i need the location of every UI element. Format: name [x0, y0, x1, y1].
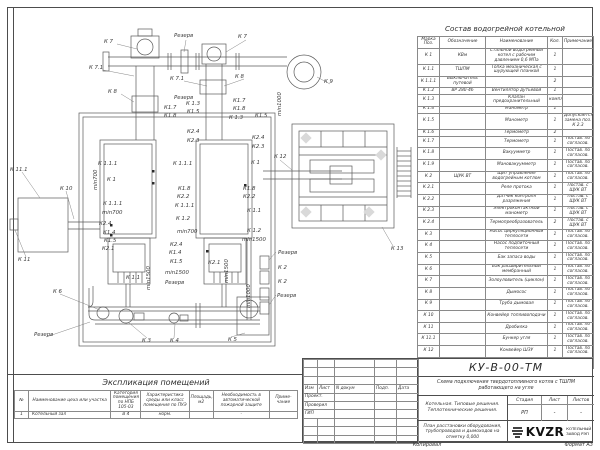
table-cell: К 11 [418, 322, 440, 334]
component-row: К 1КВмСтальной водогрейный котел с рабоч… [418, 48, 594, 64]
sig-empty-row [304, 376, 419, 384]
drawing-label: К 13 [391, 246, 404, 252]
expansion-tank-k6 [97, 307, 109, 319]
table-cell: Вентилятор дутьевой [486, 88, 548, 95]
table-cell [304, 360, 318, 368]
table-cell [375, 401, 397, 409]
component-row: К 1.2ВР 280-46Вентилятор дутьевой1 [418, 88, 594, 95]
table-cell: К 4 [418, 241, 440, 253]
title-block: ИзмЛистN докумПодп.ДатаПроект.ПроверилГИ… [302, 358, 593, 442]
component-row: К 1.5Манометр1Допускается замена поз. К … [418, 113, 594, 129]
sig-empty-row [304, 418, 419, 426]
room-explication: Экспликация помещений №Наименование цеха… [14, 378, 298, 419]
table-cell: 1 [548, 148, 563, 160]
table-cell: ГИП [304, 410, 335, 418]
drawing-label: К 7 [238, 34, 248, 40]
table-cell: К 1 [418, 48, 440, 64]
table-cell: Постав. по согласов. [563, 136, 594, 148]
drawing-label: К1.7 [233, 98, 246, 104]
table-cell: Обозначение [440, 37, 486, 49]
sheets-label: Листов [568, 396, 594, 405]
table-cell: Изм [304, 385, 318, 393]
table-cell: Стальной водогрейный котел с рабочим дав… [486, 48, 548, 64]
room-explication-table: №Наименование цеха или участкаКатегория … [14, 390, 298, 419]
table-cell: Насос циркуляционный теплосети [486, 229, 548, 241]
table-cell: 1 [548, 287, 563, 299]
table-cell [318, 418, 335, 426]
table-cell: Мановакуумметр [486, 160, 548, 172]
drawing-label: К2.4 [170, 242, 183, 248]
room-row: 1Котельный залВ 4норм.- [15, 412, 298, 419]
table-cell [440, 160, 486, 172]
table-cell: 1 [548, 322, 563, 334]
table-cell [440, 276, 486, 288]
table-cell [318, 368, 335, 376]
drawing-label: К 6 [53, 289, 63, 295]
table-cell: Площадь, м2 [189, 391, 213, 412]
table-cell: 1 [548, 334, 563, 346]
component-row: К 10Конвейер топливоподачи1Постав. по со… [418, 311, 594, 323]
table-cell: Постав. по согласов. [563, 311, 594, 323]
drawing-label: min1500 [165, 270, 189, 276]
drawing-label: К 12 [274, 154, 287, 160]
table-cell: Топка механическая с шурующей планкой [486, 65, 548, 77]
drawing-label: К1.4 [103, 230, 116, 236]
sig-role-row: Проверил [304, 401, 419, 409]
sig-header-row: ИзмЛистN докумПодп.Дата [304, 385, 419, 393]
drawing-label: К 1.3 [229, 115, 244, 121]
logo-text: KVZR [526, 425, 565, 439]
cyclone-2 [202, 44, 226, 64]
table-cell [304, 418, 318, 426]
table-cell [440, 229, 486, 241]
table-cell: К 1.3 [418, 95, 440, 107]
drawing-label: К 3 [142, 338, 152, 344]
table-cell: 1 [548, 88, 563, 95]
drawing-label: К 11.1 [10, 167, 28, 173]
table-cell: К 2 [418, 171, 440, 183]
table-cell: 1 [548, 229, 563, 241]
table-cell [304, 376, 318, 384]
table-cell: Бак запаса воды [486, 253, 548, 265]
logo-company-line2: ЗАВОД РЭП [566, 431, 589, 436]
table-cell [375, 360, 397, 368]
table-cell: 1 [548, 113, 563, 129]
table-cell: Постав. по согласов. [563, 287, 594, 299]
table-cell: К 2.1 [418, 183, 440, 195]
table-cell: Марка Поз. [418, 37, 440, 49]
table-cell: Постав. по согласов. [563, 264, 594, 276]
component-row: К 3Насос циркуляционный теплосети1Постав… [418, 229, 594, 241]
slag-bunker [263, 124, 394, 228]
sheet-value: - [542, 405, 568, 421]
table-header-row: Марка Поз.ОбозначениеНаименованиеКол.При… [418, 37, 594, 49]
drawing-label: К2.1 [208, 260, 220, 266]
table-cell: 1 [548, 206, 563, 218]
sig-empty-row [304, 368, 419, 376]
table-cell: Необходимость в автоматической пожарной … [213, 391, 269, 412]
table-cell [440, 334, 486, 346]
drawing-label: К2.3 [187, 138, 200, 144]
table-cell: К 5 [418, 253, 440, 265]
table-cell: К 12 [418, 346, 440, 358]
component-row: К 4Насос подпиточный теплосети1Постав. п… [418, 241, 594, 253]
table-cell: К 2.4 [418, 218, 440, 230]
table-cell: Подп. [375, 385, 397, 393]
drawing-label: К2.4 [252, 135, 265, 141]
table-cell [440, 206, 486, 218]
drawing-label: К 1.1.1 [173, 161, 192, 167]
kvzr-logo-icon [511, 425, 524, 439]
table-cell [440, 136, 486, 148]
table-cell: Реле протока [486, 183, 548, 195]
table-cell: Лист [318, 385, 335, 393]
table-cell: Категория помещения по НПБ 105-03 [111, 391, 141, 412]
table-cell [375, 427, 397, 435]
flange-dots [110, 170, 247, 253]
table-cell: 2 [548, 76, 563, 88]
drawing-label: Резерв [34, 332, 53, 338]
sig-role-row: ГИП [304, 410, 419, 418]
table-cell: Постав. с ЩУК ВТ [563, 183, 594, 195]
component-row: К 2.4Термопреобразователь2Постав. с ЩУК … [418, 218, 594, 230]
table-cell [563, 130, 594, 137]
table-cell: Постав. с ЩУК ВТ [563, 206, 594, 218]
table-cell: 1 [548, 276, 563, 288]
component-row: К 5Бак запаса воды1Постав. по согласов. [418, 253, 594, 265]
table-cell: 1 [15, 412, 29, 419]
table-cell: 2 [548, 130, 563, 137]
drawing-label: К 9 [324, 79, 334, 85]
table-cell: К 7 [418, 276, 440, 288]
sheet-title: План расстановки оборудования, трубопров… [418, 421, 508, 443]
table-cell: Постав. по согласов. [563, 253, 594, 265]
equipment-schedule-table: Марка Поз.ОбозначениеНаименованиеКол.При… [417, 36, 594, 369]
table-cell: К 3 [418, 229, 440, 241]
table-cell [335, 401, 375, 409]
table-cell: Примечание [563, 37, 594, 49]
drawing-label: К 1.1.1 [175, 203, 194, 209]
table-cell: Постав. по согласов. [563, 322, 594, 334]
table-cell [440, 106, 486, 113]
table-cell: 1 [548, 48, 563, 64]
equipment-schedule-title: Состав водогрейной котельной [417, 24, 593, 33]
component-row: К 2.1Реле протока1Постав. с ЩУК ВТ [418, 183, 594, 195]
table-cell [440, 113, 486, 129]
stage-grid: Стадия Лист Листов РП - - [508, 396, 594, 421]
drawing-label: К 1.3 [186, 101, 201, 107]
table-cell [563, 48, 594, 64]
sig-empty-row [304, 427, 419, 435]
table-cell: Щит управления водогрейным котлом [486, 171, 548, 183]
component-row: К 1.3Клапан предохранительныйкомпл [418, 95, 594, 107]
stage-value: РП [508, 405, 542, 421]
pump-k4 [169, 313, 179, 323]
table-cell [375, 393, 397, 401]
component-row: К 1.1.1Выключатель путевой2 [418, 76, 594, 88]
table-cell: Постав. по согласов. [563, 346, 594, 358]
drawing-label: К 7 [104, 39, 114, 45]
table-cell: 1 [548, 311, 563, 323]
table-cell [397, 427, 419, 435]
table-cell: Термопреобразователь [486, 218, 548, 230]
table-cell [440, 299, 486, 311]
conveyor-k12-drive [330, 166, 352, 184]
table-cell [440, 346, 486, 358]
drawing-label: min1500 [224, 259, 230, 283]
table-cell: 1 [548, 346, 563, 358]
table-cell: ЩУК ВТ [440, 171, 486, 183]
table-cell: Характеристика среды или класс помещения… [141, 391, 189, 412]
table-cell: К 2.2 [418, 194, 440, 206]
table-cell [397, 360, 419, 368]
table-cell: Манометр [486, 106, 548, 113]
drawing-label: К1.5 [187, 109, 200, 115]
table-cell [486, 76, 548, 88]
component-row: К 8Дымосос1Постав. по согласов. [418, 287, 594, 299]
table-cell [563, 76, 594, 88]
component-row: К 1.4Манометр1 [418, 106, 594, 113]
table-cell: К 11.1 [418, 334, 440, 346]
table-cell: Котельный зал [29, 412, 111, 419]
drawing-label: К2.4 [99, 221, 112, 227]
table-cell [335, 368, 375, 376]
table-cell: № [15, 391, 29, 412]
component-row: К 7Золоуловитель (циклон)1Постав. по сог… [418, 276, 594, 288]
table-cell [375, 418, 397, 426]
logo-company: КОТЕЛЬНЫЙ ЗАВОД РЭП [566, 427, 591, 436]
control-cabinets [260, 256, 269, 314]
table-cell [335, 427, 375, 435]
sheets-value: - [568, 405, 594, 421]
table-cell: Постав. по согласов. [563, 171, 594, 183]
scheme-title: Схема подключения твердотопливного котла… [418, 377, 594, 396]
table-cell: 1 [548, 106, 563, 113]
table-cell: Наименование [486, 37, 548, 49]
table-cell: 1 [548, 183, 563, 195]
coal-bunker [10, 198, 100, 252]
company-logo: KVZR КОТЕЛЬНЫЙ ЗАВОД РЭП [508, 421, 594, 443]
drawing-label: Резерв [165, 280, 184, 286]
table-cell: Дробилка [486, 322, 548, 334]
drawing-label: К 7.1 [89, 65, 103, 71]
table-cell: К 1.1 [418, 65, 440, 77]
table-cell: Труба дымовая [486, 299, 548, 311]
table-cell [375, 376, 397, 384]
component-row: К 2ЩУК ВТЩит управления водогрейным котл… [418, 171, 594, 183]
table-cell [440, 183, 486, 195]
table-cell: Постав. по согласов. [563, 229, 594, 241]
table-cell: Проект. [304, 393, 335, 401]
table-cell [335, 410, 375, 418]
table-cell: Датчик контроля разряжения [486, 194, 548, 206]
table-cell: Приме- чание [269, 391, 297, 412]
component-row: К 1.1ТШПМТопка механическая с шурующей п… [418, 65, 594, 77]
drawing-label: К 1.1 [126, 275, 140, 281]
drawing-label: К 11 [18, 257, 30, 263]
table-cell: N докум [335, 385, 375, 393]
table-cell: К 10 [418, 311, 440, 323]
table-cell [318, 435, 335, 443]
table-cell [269, 412, 297, 419]
component-row: К 1.9Мановакуумметр1Постав. по согласов. [418, 160, 594, 172]
drawing-label: К 1 [107, 177, 116, 183]
table-cell: ТШПМ [440, 65, 486, 77]
drawing-label: К2.3 [252, 144, 265, 150]
drawing-label: К 4 [170, 338, 180, 344]
drawing-label: К1.8 [178, 186, 191, 192]
table-cell [318, 360, 335, 368]
drawing-label: К1.8 [233, 106, 246, 112]
table-cell [440, 148, 486, 160]
drawing-label: К2.2 [177, 194, 190, 200]
component-row: К 1.6Термометр2 [418, 130, 594, 137]
drawing-label: min1500 [242, 237, 266, 243]
table-cell [440, 194, 486, 206]
drawing-label: min700 [102, 210, 123, 216]
water-tank-k5 [237, 297, 269, 335]
table-cell [440, 253, 486, 265]
component-row: К 11Дробилка1Постав. по согласов. [418, 322, 594, 334]
table-cell: КВм [440, 48, 486, 64]
table-cell: Конвейер топливоподачи [486, 311, 548, 323]
table-cell [304, 427, 318, 435]
table-cell: Постав. по согласов. [563, 276, 594, 288]
table-cell: Выключатель путевой [440, 76, 486, 88]
table-cell: Дымосос [486, 287, 548, 299]
drawing-label: К1.5 [104, 238, 117, 244]
component-row: К 1.7Термометр1Постав. по согласов. [418, 136, 594, 148]
copied-label: Копировал [392, 442, 462, 448]
signature-table: ИзмЛистN докумПодп.ДатаПроект.ПроверилГИ… [303, 359, 419, 444]
drawing-label: К2.4 [187, 129, 200, 135]
table-cell [397, 410, 419, 418]
document-number: КУ-В-00-ТМ [418, 359, 594, 377]
table-cell [397, 401, 419, 409]
drawing-label: К 2 [278, 279, 288, 285]
table-cell: 1 [548, 241, 563, 253]
table-cell [440, 322, 486, 334]
table-cell: Постав. по согласов. [563, 241, 594, 253]
drawing-label: К 1.1.1 [103, 201, 122, 207]
drawing-label: К 1.2 [247, 228, 262, 234]
component-row: К 2.3Электроконтактный манометр1Постав. … [418, 206, 594, 218]
table-cell: ВР 280-46 [440, 88, 486, 95]
component-row: К 1.8Вакуумметр1Постав. по согласов. [418, 148, 594, 160]
signature-grid: ИзмЛистN докумПодп.ДатаПроект.ПроверилГИ… [303, 359, 418, 443]
drawing-label: К2.1 [102, 246, 114, 252]
table-cell: Кол. [548, 37, 563, 49]
table-cell: К 2.3 [418, 206, 440, 218]
component-row: К 12Конвейер ШЗУ1Постав. по согласов. [418, 346, 594, 358]
table-cell [335, 360, 375, 368]
stage-label: Стадия [508, 396, 542, 405]
table-cell: К 6 [418, 264, 440, 276]
drawing-label: К 7.1 [170, 76, 184, 82]
project-title: Котельная. Типовые решения. Теплотехниче… [418, 396, 508, 421]
table-cell [335, 435, 375, 443]
component-row: К 6Бак расширительный мембранный1Постав.… [418, 264, 594, 276]
room-explication-title: Экспликация помещений [14, 378, 298, 387]
blueprint-sheet: К 7РезервК 7К 7.1К 7.1К 8РезервК 8К 9min… [0, 0, 600, 450]
table-cell: 1 [548, 136, 563, 148]
sig-role-row: Проект. [304, 393, 419, 401]
table-header-row: №Наименование цеха или участкаКатегория … [15, 391, 298, 412]
table-cell: Вакуумметр [486, 148, 548, 160]
flue-duct [103, 50, 287, 73]
table-cell: Термометр [486, 136, 548, 148]
drawing-label: min1000 [277, 92, 283, 116]
table-cell [563, 95, 594, 107]
table-cell [304, 435, 318, 443]
table-cell: Постав. по согласов. [563, 160, 594, 172]
table-cell [440, 264, 486, 276]
drawing-label: К 8 [108, 89, 118, 95]
table-cell: Золоуловитель (циклон) [486, 276, 548, 288]
table-cell: 1 [548, 171, 563, 183]
drawing-label: К1.8 [164, 113, 177, 119]
table-cell: 1 [548, 264, 563, 276]
table-cell: Манометр [486, 113, 548, 129]
drawing-label: К1.5 [255, 113, 268, 119]
drawing-label: Резерв [277, 293, 296, 299]
table-cell: 2 [548, 218, 563, 230]
table-cell [563, 88, 594, 95]
table-cell: Постав. с ЩУК ВТ [563, 194, 594, 206]
table-cell [318, 427, 335, 435]
table-cell: Конвейер ШЗУ [486, 346, 548, 358]
table-cell: К 1.9 [418, 160, 440, 172]
table-cell: Бункер угля [486, 334, 548, 346]
table-cell: Проверил [304, 401, 335, 409]
table-cell [397, 368, 419, 376]
table-cell [440, 130, 486, 137]
drawing-label: min700 [177, 229, 198, 235]
table-cell [440, 311, 486, 323]
table-cell [397, 393, 419, 401]
table-cell: Постав. по согласов. [563, 299, 594, 311]
drawing-label: min1500 [146, 266, 152, 290]
table-cell [440, 95, 486, 107]
table-cell: К 8 [418, 287, 440, 299]
drawing-label: К2.2 [243, 194, 256, 200]
table-cell [375, 368, 397, 376]
table-cell [397, 418, 419, 426]
table-cell: Термометр [486, 130, 548, 137]
table-cell: К 1.2 [418, 88, 440, 95]
sig-empty-row [304, 360, 419, 368]
table-cell: Допускается замена поз. К 2.3 [563, 113, 594, 129]
table-cell: 1 [548, 299, 563, 311]
table-cell [397, 376, 419, 384]
table-cell: - [213, 412, 269, 419]
drawing-label: К 10 [60, 186, 73, 192]
table-cell [318, 376, 335, 384]
plan-drawing: К 7РезервК 7К 7.1К 7.1К 8РезервК 8К 9min… [0, 0, 420, 380]
table-cell: К 1.5 [418, 113, 440, 129]
drawing-label: min1000 [246, 284, 252, 308]
table-cell [189, 412, 213, 419]
table-cell [304, 368, 318, 376]
drawing-label: К 2 [278, 265, 288, 271]
table-cell: норм. [141, 412, 189, 419]
table-cell [335, 393, 375, 401]
table-cell [563, 65, 594, 77]
table-cell [563, 106, 594, 113]
drawing-label: К 1.2 [176, 216, 191, 222]
table-cell: Электроконтактный манометр [486, 206, 548, 218]
table-cell: Клапан предохранительный [486, 95, 548, 107]
